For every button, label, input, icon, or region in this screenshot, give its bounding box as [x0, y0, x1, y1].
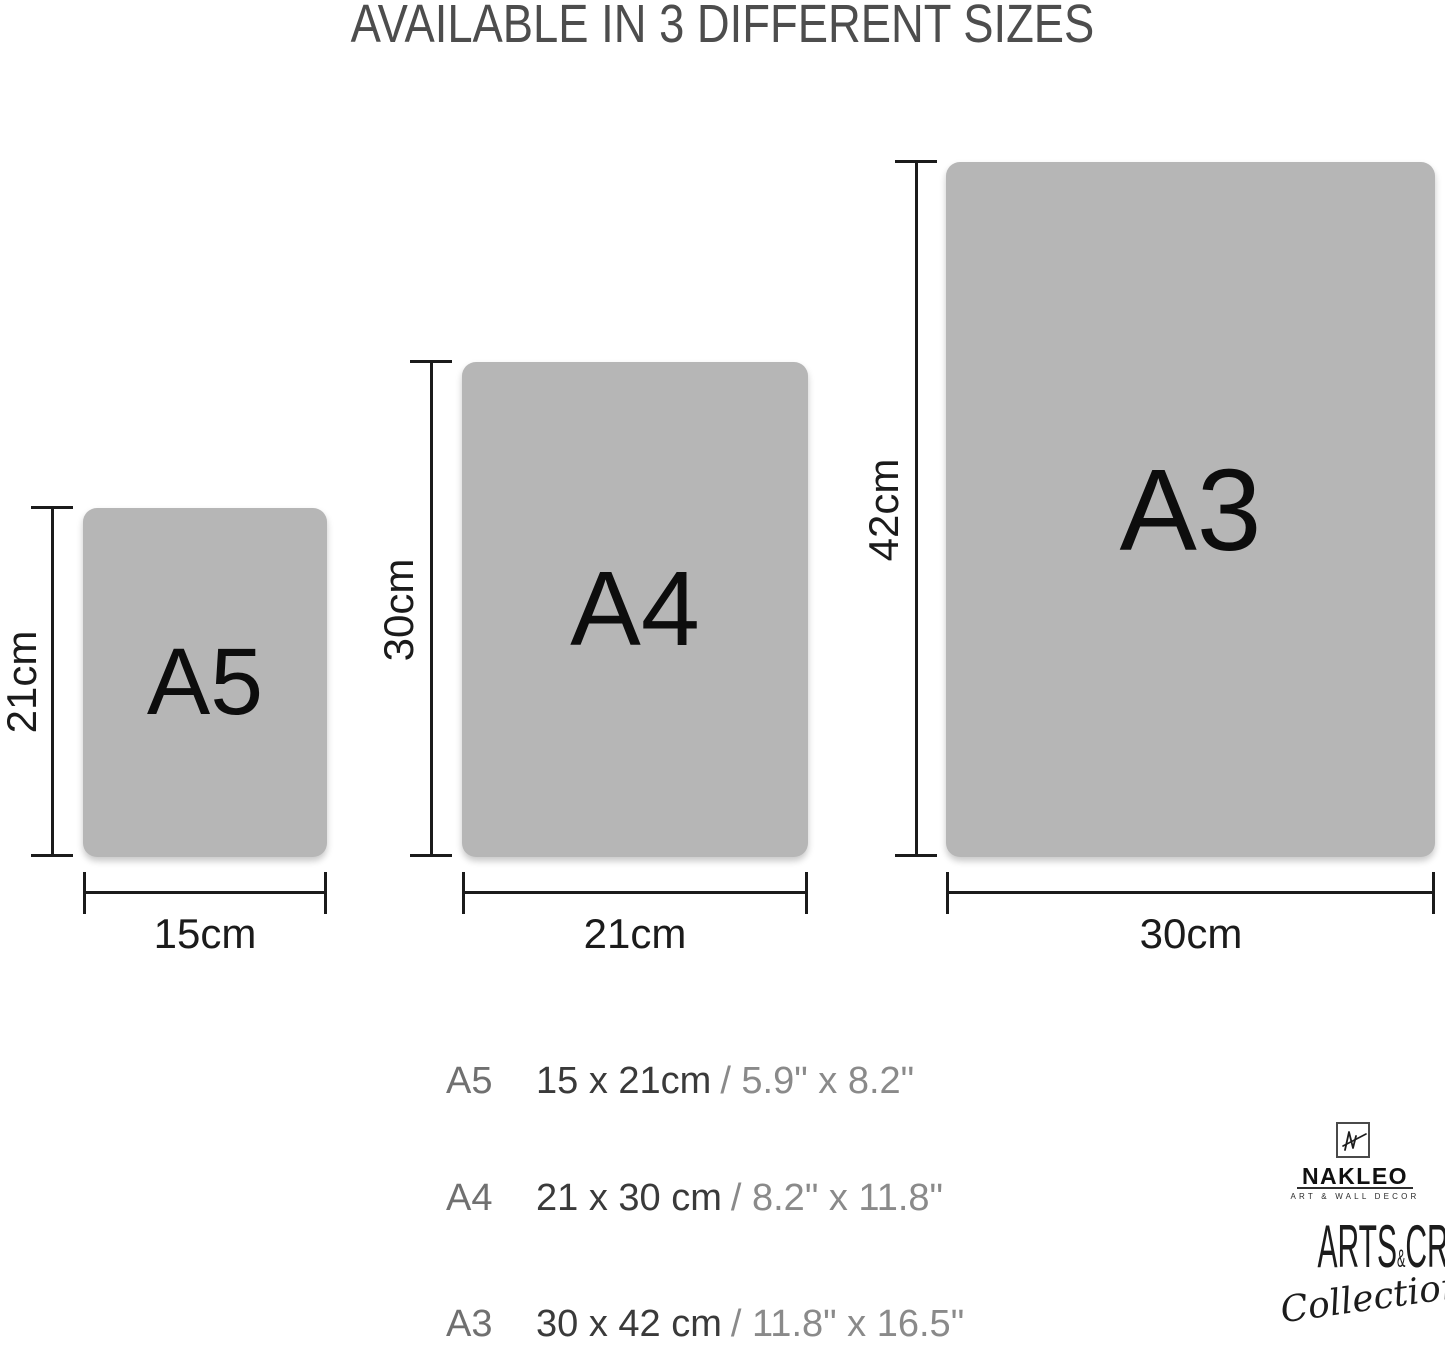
a5-width-line — [83, 891, 327, 894]
brand-collection-script: Collection — [1278, 1270, 1432, 1331]
a5-height-line — [51, 507, 54, 857]
a4-height-line — [430, 361, 433, 857]
size-code: A3 — [446, 1299, 536, 1349]
a3-width-tick-left — [946, 872, 949, 914]
a5-height-label: 21cm — [1, 622, 43, 742]
size-list-row-a5: A5 15 x 21cm / 5.9" x 8.2" — [446, 1056, 914, 1106]
a3-height-tick-top — [895, 160, 937, 163]
a4-height-label: 30cm — [378, 550, 420, 670]
size-imperial: / 11.8" x 16.5" — [731, 1299, 964, 1349]
nakleo-monogram-icon — [1336, 1122, 1370, 1158]
paper-a5-label: A5 — [147, 628, 263, 737]
paper-a4-label: A4 — [570, 549, 700, 670]
page-title: AVAILABLE IN 3 DIFFERENT SIZES — [116, 0, 1330, 55]
a5-height-tick-top — [31, 506, 73, 509]
size-metric: 21 x 30 cm — [536, 1173, 722, 1223]
a3-height-tick-bottom — [895, 854, 937, 857]
size-code: A4 — [446, 1173, 536, 1223]
paper-a5: A5 — [83, 508, 327, 857]
size-list-row-a3: A3 30 x 42 cm / 11.8" x 16.5" — [446, 1299, 964, 1349]
brand-ampersand: & — [1397, 1245, 1405, 1273]
a5-width-tick-left — [83, 872, 86, 914]
size-list-row-a4: A4 21 x 30 cm / 8.2" x 11.8" — [446, 1173, 943, 1223]
a3-width-label: 30cm — [1111, 913, 1271, 955]
a4-width-tick-right — [805, 872, 808, 914]
paper-a3-label: A3 — [1120, 443, 1262, 577]
brand-name: NAKLEO — [1280, 1163, 1430, 1190]
brand-tagline: ART & WALL DECOR — [1280, 1192, 1430, 1201]
brand-divider — [1297, 1187, 1413, 1189]
size-metric: 15 x 21cm — [536, 1056, 711, 1106]
a5-width-label: 15cm — [125, 913, 285, 955]
brand-collection-title: ARTS&CRAFTS — [1318, 1216, 1393, 1278]
a5-width-tick-right — [324, 872, 327, 914]
size-imperial: / 8.2" x 11.8" — [731, 1173, 943, 1223]
paper-a4: A4 — [462, 362, 808, 857]
size-guide-infographic: AVAILABLE IN 3 DIFFERENT SIZES A5 21cm 1… — [0, 0, 1445, 1353]
a4-width-label: 21cm — [555, 913, 715, 955]
size-code: A5 — [446, 1056, 536, 1106]
a3-height-line — [915, 161, 918, 857]
a3-width-line — [946, 891, 1435, 894]
a4-height-tick-bottom — [410, 854, 452, 857]
size-metric: 30 x 42 cm — [536, 1299, 722, 1349]
a3-height-label: 42cm — [863, 450, 905, 570]
size-imperial: / 5.9" x 8.2" — [720, 1056, 914, 1106]
a4-width-tick-left — [462, 872, 465, 914]
a4-width-line — [462, 891, 808, 894]
a3-width-tick-right — [1432, 872, 1435, 914]
a5-height-tick-bottom — [31, 854, 73, 857]
a4-height-tick-top — [410, 360, 452, 363]
paper-a3: A3 — [946, 162, 1435, 857]
brand-arts-text: ARTS — [1318, 1213, 1397, 1280]
